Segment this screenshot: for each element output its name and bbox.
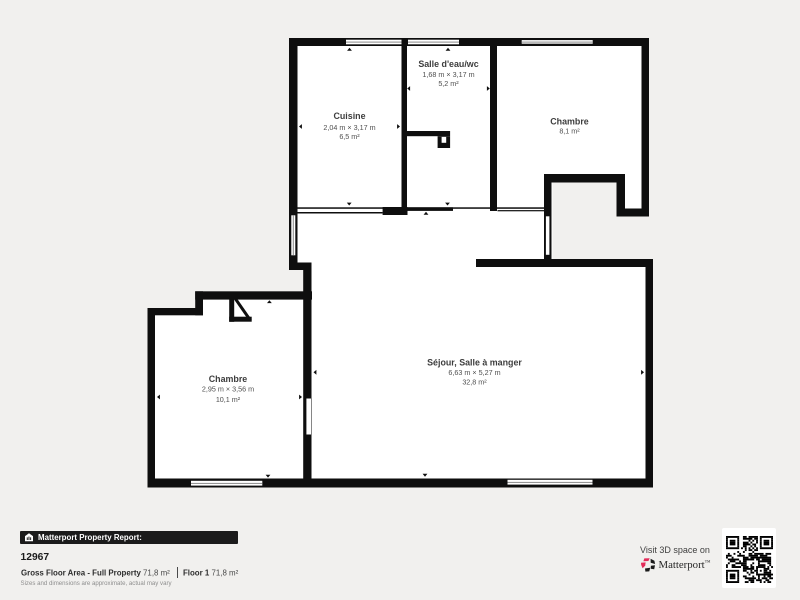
svg-text:32,8 m²: 32,8 m² [462, 377, 487, 386]
svg-text:10,1 m²: 10,1 m² [216, 395, 241, 404]
svg-text:Salle d'eau/wc: Salle d'eau/wc [418, 59, 478, 69]
svg-text:2,04 m × 3,17 m: 2,04 m × 3,17 m [323, 123, 375, 132]
svg-text:2,95 m × 3,56 m: 2,95 m × 3,56 m [202, 385, 254, 394]
svg-text:6,5 m²: 6,5 m² [339, 132, 360, 141]
svg-text:5,2 m²: 5,2 m² [438, 79, 459, 88]
svg-text:Cuisine: Cuisine [333, 111, 365, 121]
svg-text:Chambre: Chambre [550, 117, 589, 127]
svg-text:Chambre: Chambre [209, 374, 248, 384]
svg-text:6,63 m × 5,27 m: 6,63 m × 5,27 m [448, 368, 500, 377]
svg-text:Séjour, Salle à manger: Séjour, Salle à manger [427, 358, 522, 368]
svg-text:8,1 m²: 8,1 m² [559, 127, 580, 136]
